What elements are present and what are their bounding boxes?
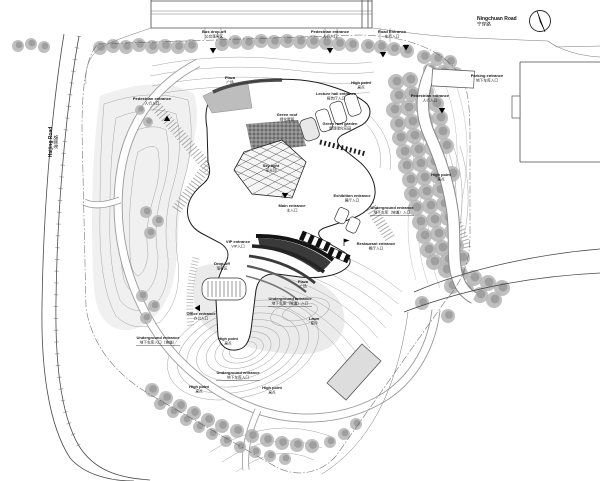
- tree-icon: [404, 186, 420, 202]
- label-ningchuan-road: Ningchuan Road宁穿路: [477, 16, 517, 28]
- label-bus-dropoff-entrance: Bus drop-off公交落客区: [202, 29, 227, 38]
- tree-icon: [264, 450, 276, 462]
- tree-icon: [132, 38, 146, 52]
- tree-icon: [432, 110, 448, 126]
- tree-icon: [386, 102, 402, 118]
- tree-icon: [290, 438, 304, 452]
- tree-icon: [416, 228, 432, 244]
- tree-icon: [180, 414, 192, 426]
- tree-icon: [350, 418, 362, 430]
- label-road-entrance: Road Entrance车行入口: [378, 29, 407, 38]
- label-high-point-n: High point高点: [351, 80, 371, 89]
- tree-icon: [441, 309, 455, 323]
- tree-icon: [361, 39, 375, 53]
- tree-icon: [398, 158, 414, 174]
- tree-icon: [275, 436, 289, 450]
- tree-icon: [38, 41, 50, 53]
- tree-icon: [306, 35, 320, 49]
- site-plan-canvas: Architectural site plan — cultural cente…: [0, 0, 600, 481]
- existing-building: [327, 344, 381, 400]
- tree-icon: [228, 35, 242, 49]
- north-arrow-icon: [530, 11, 551, 33]
- tree-icon: [106, 39, 120, 53]
- tree-icon: [154, 398, 166, 410]
- tree-icon: [25, 38, 37, 50]
- tree-icon: [148, 300, 160, 312]
- tree-icon: [412, 156, 428, 172]
- tree-icon: [417, 50, 431, 64]
- tree-icon: [12, 40, 24, 52]
- tree-icon: [402, 72, 418, 88]
- entrance-marker-down-icon: [210, 48, 216, 54]
- tree-icon: [426, 212, 442, 228]
- tree-icon: [402, 172, 418, 188]
- label-haijing-road: Haijing Road海景路: [48, 127, 60, 158]
- tree-icon: [392, 130, 408, 146]
- tree-icon: [230, 424, 244, 438]
- label-underground-entrance-east: Underground entrance地下车库（坡道）入口: [370, 205, 414, 214]
- south-canopy-ribs: [202, 278, 246, 300]
- tree-icon: [254, 34, 268, 48]
- label-underground-entrance-sw2: Underground entrance地下车库入口: [216, 370, 260, 379]
- tree-icon: [345, 38, 359, 52]
- entrance-marker-down-icon: [380, 52, 386, 58]
- tree-icon: [416, 170, 432, 186]
- tree-icon: [267, 35, 281, 49]
- tree-icon: [215, 37, 229, 51]
- entrance-marker-flag-icon: [344, 239, 349, 246]
- tree-icon: [400, 100, 416, 116]
- tree-icon: [144, 227, 156, 239]
- entrance-marker-down-icon: [327, 48, 333, 54]
- tree-icon: [418, 184, 434, 200]
- tree-icon: [396, 144, 412, 160]
- tree-icon: [406, 128, 422, 144]
- label-parking-entrance-east: Parking entrance地下车库入口: [471, 73, 504, 82]
- tree-icon: [152, 215, 164, 227]
- tree-icon: [374, 40, 388, 54]
- tree-icon: [140, 312, 152, 324]
- tree-icon: [332, 37, 346, 51]
- tree-icon: [280, 34, 294, 48]
- tree-icon: [140, 206, 152, 218]
- tree-icon: [387, 42, 401, 56]
- label-underground-entrance-s: Underground entrance地下车库（坡道）入口: [268, 296, 312, 305]
- tree-icon: [249, 446, 261, 458]
- tree-icon: [119, 40, 133, 54]
- tree-icon: [486, 292, 502, 308]
- tree-icon: [234, 441, 246, 453]
- tree-icon: [245, 429, 259, 443]
- tree-icon: [136, 290, 148, 302]
- tree-icon: [430, 226, 446, 242]
- tree-icon: [305, 439, 319, 453]
- tree-icon: [260, 433, 274, 447]
- tree-icon: [220, 435, 232, 447]
- tree-icon: [388, 74, 404, 90]
- tree-icon: [167, 406, 179, 418]
- tree-icon: [410, 142, 426, 158]
- tree-icon: [171, 40, 185, 54]
- tree-icon: [412, 214, 428, 230]
- label-high-point-se: High point高点: [262, 385, 282, 394]
- tree-icon: [324, 436, 336, 448]
- tree-icon: [241, 36, 255, 50]
- tree-icon: [158, 39, 172, 53]
- tree-icon: [143, 117, 153, 127]
- label-restaurant-entrance: Restaurant entrance餐厅入口: [357, 241, 396, 250]
- tree-icon: [145, 383, 159, 397]
- tree-icon: [279, 453, 291, 465]
- tree-icon: [415, 296, 429, 310]
- tree-icon: [390, 116, 406, 132]
- tree-icon: [422, 198, 438, 214]
- label-underground-entrance-sw: Underground entrance地下车库入口（坡道）: [136, 335, 180, 344]
- tree-icon: [135, 105, 145, 115]
